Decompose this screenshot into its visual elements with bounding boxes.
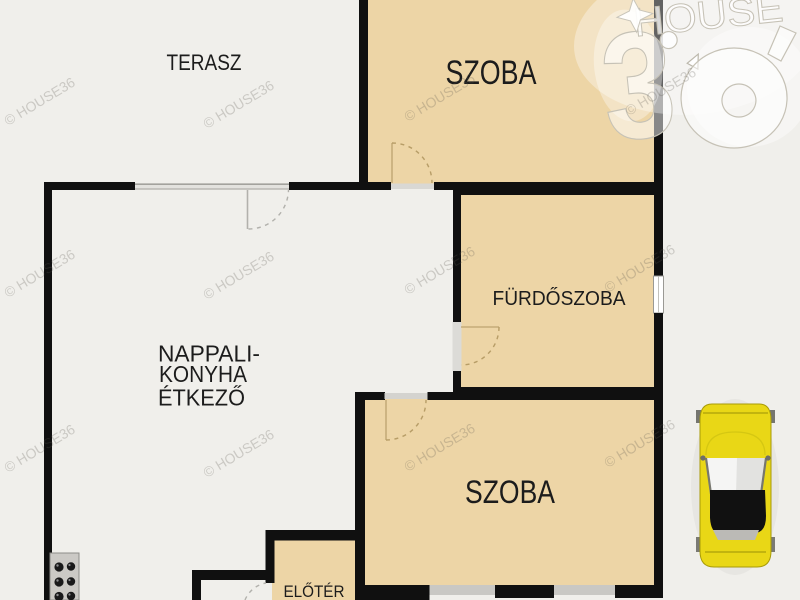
svg-text:TERASZ: TERASZ: [167, 50, 242, 75]
svg-text:ÉTKEZŐ: ÉTKEZŐ: [158, 385, 245, 411]
svg-text:KONYHA: KONYHA: [159, 361, 247, 387]
svg-text:ELŐTÉR: ELŐTÉR: [284, 582, 345, 600]
svg-text:SZOBA: SZOBA: [465, 474, 556, 510]
